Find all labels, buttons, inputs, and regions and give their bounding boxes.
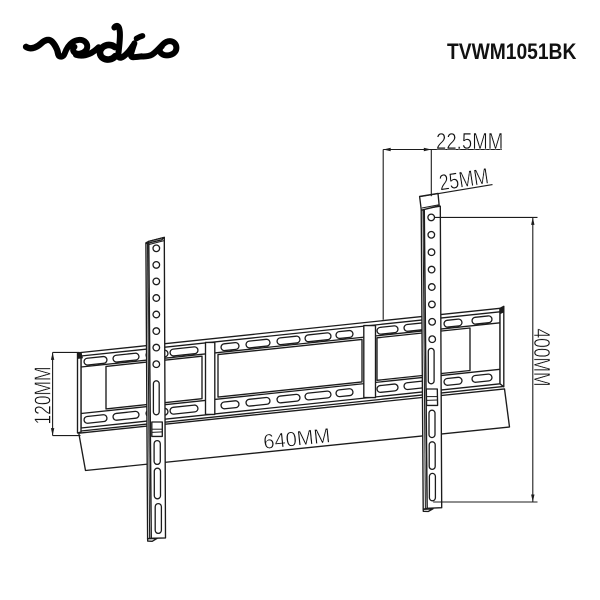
svg-text:120MM: 120MM: [30, 367, 56, 425]
svg-text:TVWM1051BK: TVWM1051BK: [447, 40, 576, 64]
svg-text:400MM: 400MM: [528, 329, 554, 387]
svg-text:22.5MM: 22.5MM: [436, 129, 503, 154]
